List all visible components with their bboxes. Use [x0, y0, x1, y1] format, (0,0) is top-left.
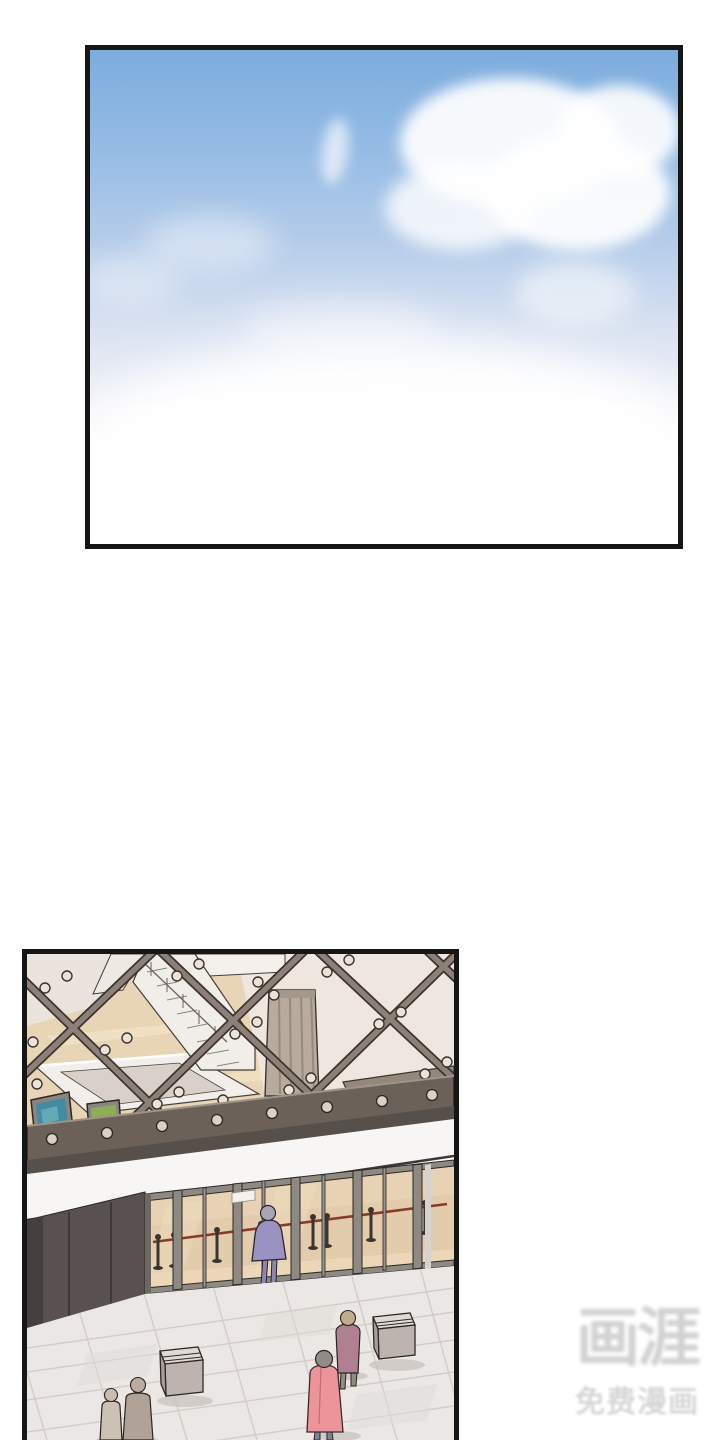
watermark-subtitle: 免费漫画 — [552, 1377, 720, 1421]
museum-panel — [22, 949, 459, 1440]
watermark: 画涯 免费漫画 — [552, 1306, 720, 1421]
cloud — [240, 300, 440, 360]
bench — [373, 1313, 415, 1359]
cloud — [385, 165, 535, 250]
cloud-wisp — [318, 117, 353, 186]
cloud-haze — [85, 340, 683, 549]
right-jamb — [425, 1164, 431, 1269]
cloud — [85, 255, 180, 305]
cloud — [515, 260, 635, 325]
museum-scene — [27, 954, 454, 1440]
sky-panel — [85, 45, 683, 549]
bench — [160, 1347, 203, 1396]
cloud — [560, 85, 680, 175]
watermark-logo: 画涯 — [552, 1306, 720, 1370]
